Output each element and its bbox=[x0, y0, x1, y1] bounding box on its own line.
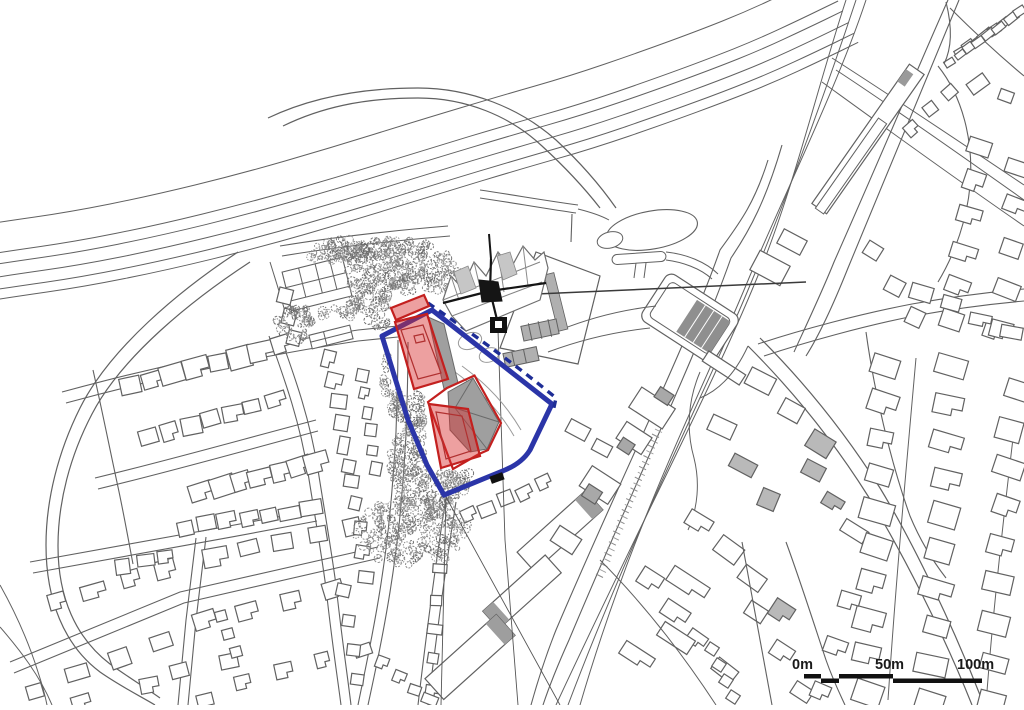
svg-text:100m: 100m bbox=[957, 657, 994, 673]
svg-text:0m: 0m bbox=[792, 657, 813, 673]
svg-text:50m: 50m bbox=[875, 657, 904, 673]
